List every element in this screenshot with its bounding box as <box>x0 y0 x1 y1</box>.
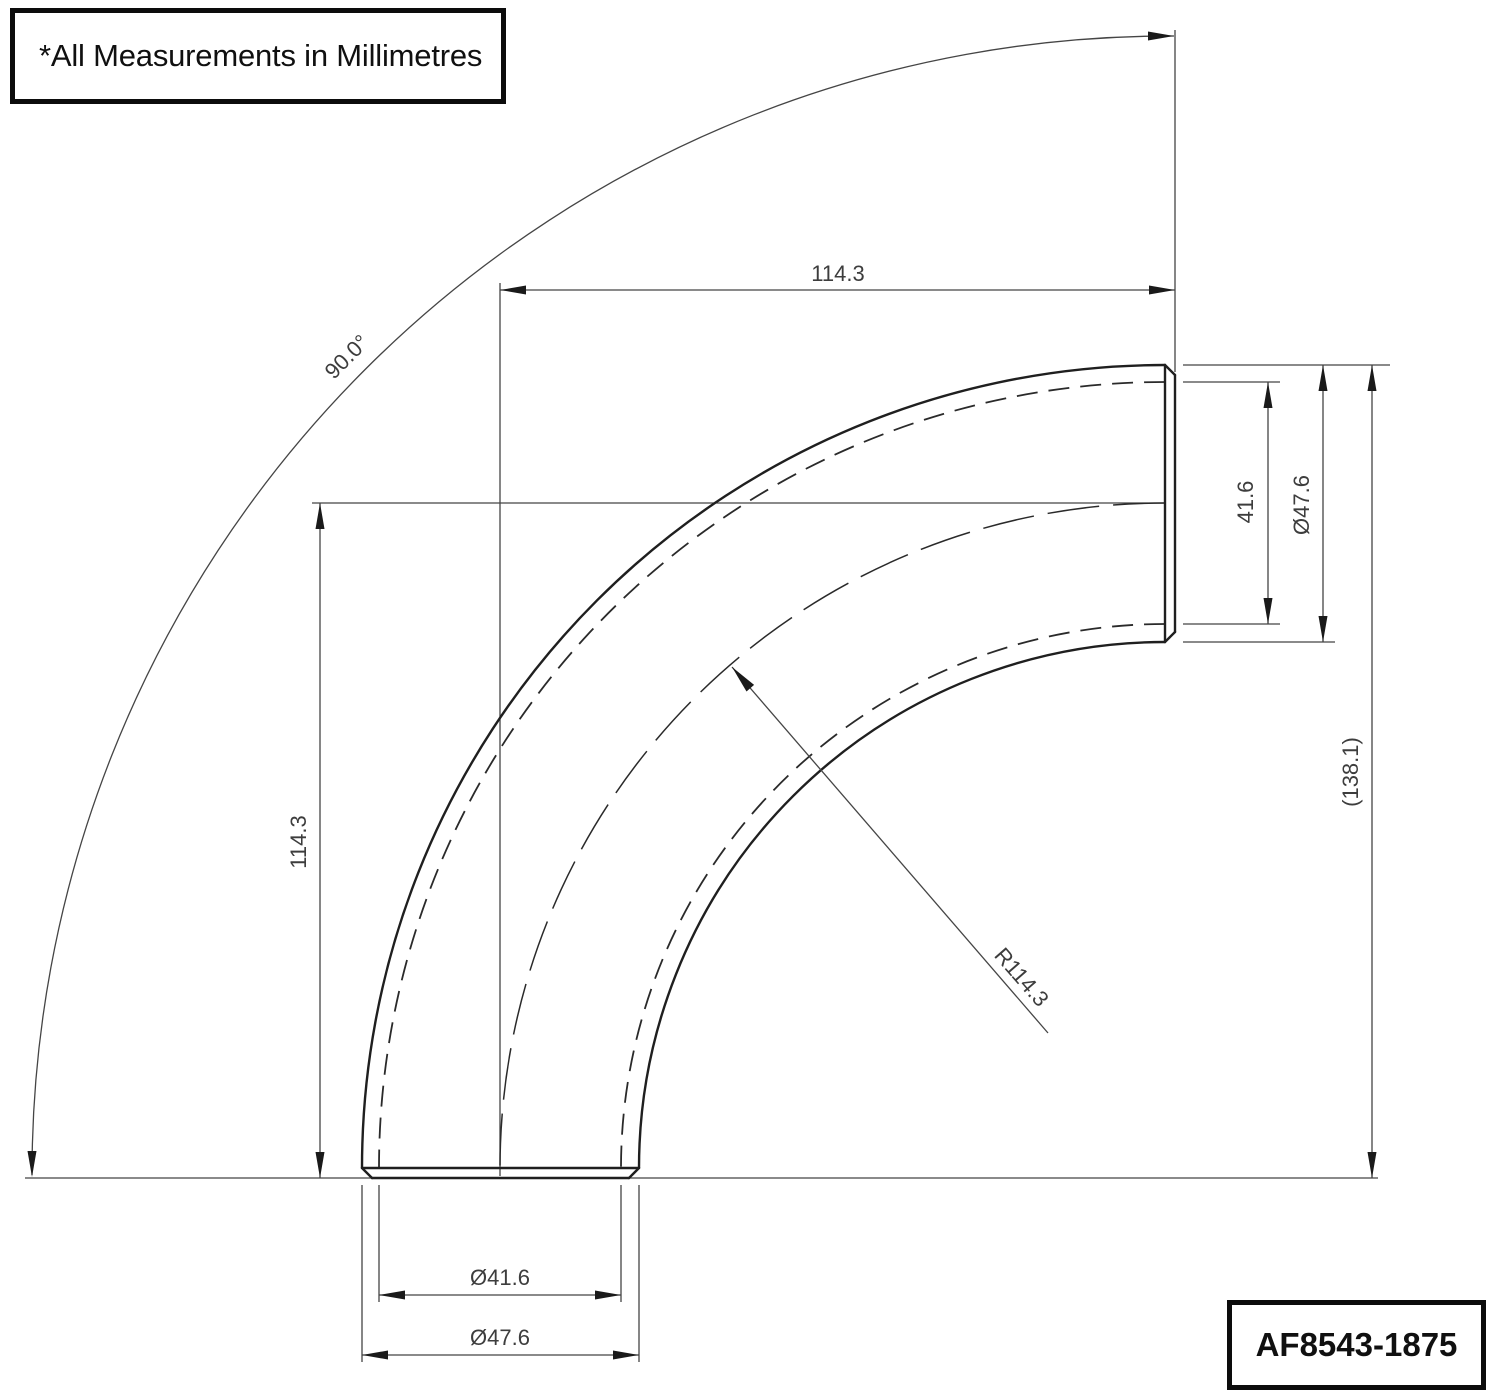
hidden-lines <box>379 382 1165 1168</box>
dim-arrow-port-outer-bottom <box>1319 616 1328 642</box>
part-number-box: AF8543-1875 <box>1227 1300 1486 1390</box>
dim-arrow-top-right <box>1149 286 1175 295</box>
dim-port-inner: 41.6 <box>1233 382 1273 624</box>
dim-arrow-port-inner-top <box>1264 382 1273 408</box>
elbow-drawing-svg: 90.0° 114.3 114.3 41.6 Ø47.6 <box>0 0 1494 1394</box>
dim-left-length: 114.3 <box>286 503 325 1178</box>
right-end-chamfer-top <box>1165 365 1175 375</box>
dim-arrow-left-bottom <box>316 1152 325 1178</box>
bottom-end-chamfer-left <box>362 1168 372 1178</box>
dim-arrow-overall-top <box>1368 365 1377 391</box>
technical-drawing-canvas: 90.0° 114.3 114.3 41.6 Ø47.6 <box>0 0 1494 1394</box>
measurements-note-box: *All Measurements in Millimetres <box>10 8 506 104</box>
dim-label-port-inner: 41.6 <box>1233 481 1258 524</box>
hidden-inner-wall-arc <box>621 624 1165 1168</box>
dim-bottom-inner: Ø41.6 <box>379 1265 621 1300</box>
dim-overall-height: (138.1) <box>1338 365 1377 1178</box>
dim-arrow-top-left <box>500 286 526 295</box>
dim-arrow-bottom-outer-right <box>613 1351 639 1360</box>
dim-label-overall-height: (138.1) <box>1338 737 1363 807</box>
pipe-centerline-arc <box>500 503 1165 1168</box>
dim-label-top-length: 114.3 <box>811 261 864 286</box>
dim-arrow-bottom-inner-left <box>379 1291 405 1300</box>
dim-bottom-outer: Ø47.6 <box>362 1325 639 1360</box>
dim-bend-angle: 90.0° <box>28 32 1175 1178</box>
hidden-outer-wall-arc <box>379 382 1165 1168</box>
pipe-inner-arc <box>639 642 1165 1168</box>
dim-arrow-bottom-inner-right <box>595 1291 621 1300</box>
dim-bend-radius: R114.3 <box>732 667 1054 1033</box>
dim-arrow-left-top <box>316 503 325 529</box>
dim-arrow-bottom-outer-left <box>362 1351 388 1360</box>
angle-arc-arrow-bottom <box>28 1151 37 1177</box>
part-number-text: AF8543-1875 <box>1256 1326 1458 1364</box>
dim-arrow-port-outer-top <box>1319 365 1328 391</box>
right-end-chamfer-bottom <box>1165 632 1175 642</box>
dim-arrow-overall-bottom <box>1368 1152 1377 1178</box>
dim-label-port-outer: Ø47.6 <box>1289 475 1314 535</box>
extension-lines <box>25 30 1390 1362</box>
dim-label-bottom-outer: Ø47.6 <box>470 1325 530 1350</box>
angle-dimension-arc <box>32 36 1174 1175</box>
bottom-end-chamfer-right <box>629 1168 639 1178</box>
pipe-outline <box>362 365 1175 1178</box>
dim-label-bend-angle: 90.0° <box>320 330 374 384</box>
dim-arrow-port-inner-bottom <box>1264 598 1273 624</box>
angle-arc-arrow-top <box>1148 32 1174 41</box>
dim-top-length: 114.3 <box>500 261 1175 295</box>
dim-port-outer: Ø47.6 <box>1289 365 1328 642</box>
dim-label-left-length: 114.3 <box>286 815 311 868</box>
dim-label-bottom-inner: Ø41.6 <box>470 1265 530 1290</box>
measurements-note-text: *All Measurements in Millimetres <box>39 38 482 74</box>
pipe-outer-arc <box>362 365 1165 1168</box>
leader-bend-radius <box>732 667 1048 1033</box>
